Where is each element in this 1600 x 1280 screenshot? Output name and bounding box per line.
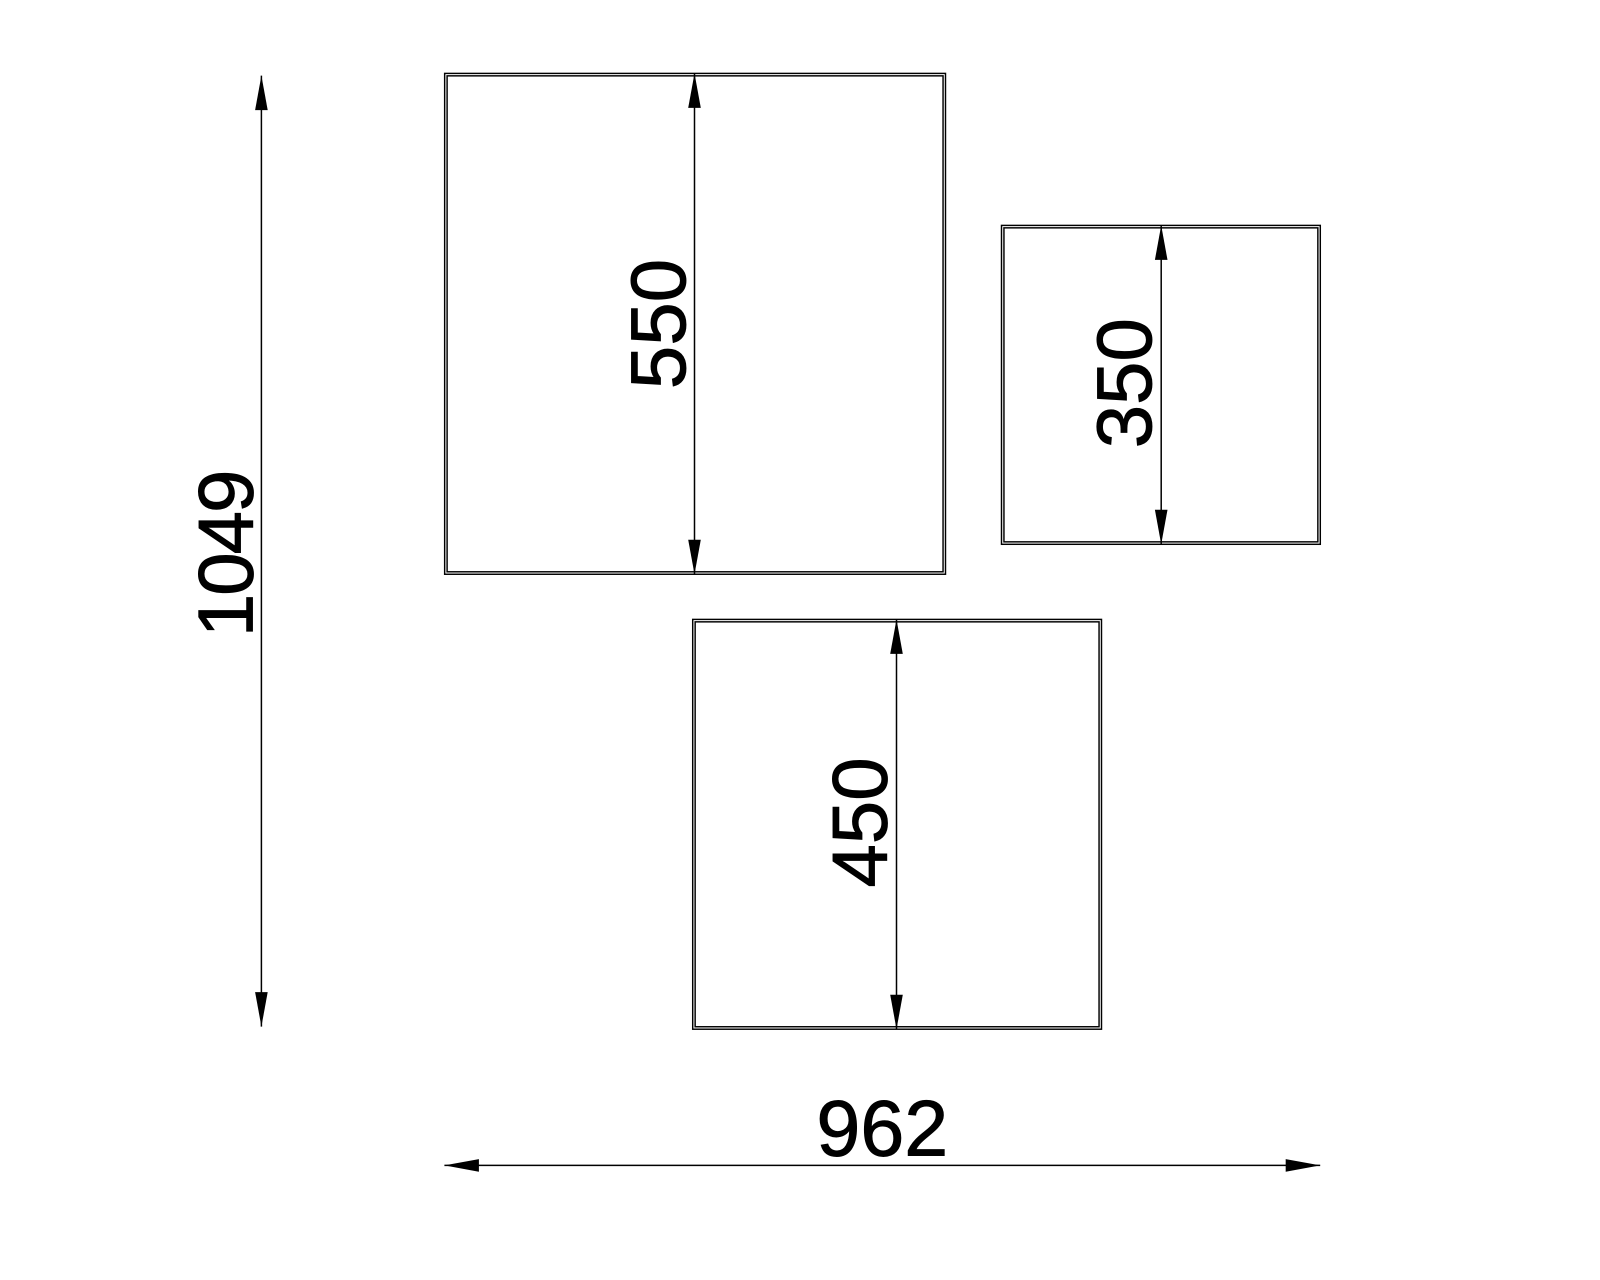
svg-text:962: 962 [816, 1084, 948, 1173]
svg-text:450: 450 [815, 757, 903, 887]
svg-text:1049: 1049 [181, 472, 269, 638]
svg-text:350: 350 [1080, 318, 1168, 448]
svg-text:550: 550 [614, 259, 702, 389]
